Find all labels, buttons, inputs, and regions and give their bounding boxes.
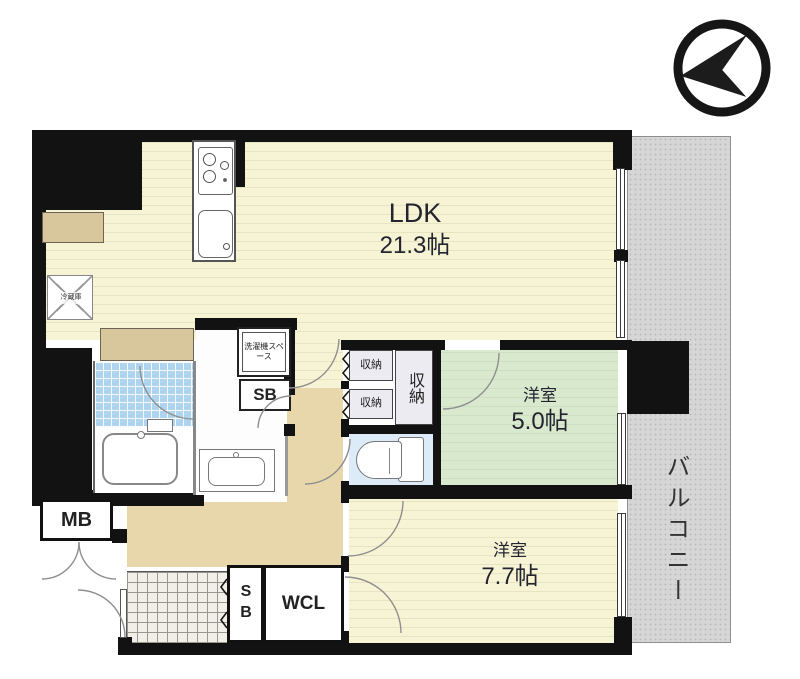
bedroom-small-name: 洋室: [523, 385, 557, 406]
mb-door-left-arc: [42, 542, 79, 579]
ldk-label: LDK 21.3帖: [340, 196, 490, 262]
ldk-size: 21.3帖: [380, 231, 451, 261]
mb-door-right-arc: [79, 542, 116, 579]
shoebox-bifold-icon: [221, 579, 227, 628]
bedroom-large-size: 7.7帖: [481, 562, 538, 592]
bedroom-large-name: 洋室: [493, 540, 527, 561]
bedroom-small-size: 5.0帖: [511, 407, 568, 437]
balcony-label: バルコニー: [643, 425, 707, 637]
front-door-arc: [78, 590, 125, 637]
washroom-door-arc: [258, 396, 291, 428]
closet-top-bifold-icon: [343, 352, 349, 380]
bedroom-large-door-arc: [348, 501, 403, 556]
wcl-door-arc: [345, 577, 401, 633]
ldk-name: LDK: [389, 197, 442, 231]
floorplan-page: { "plan_title": "間取り図", "compass": {"ico…: [0, 0, 800, 679]
compass-arrow-icon: [666, 14, 778, 122]
closet-bottom-bifold-icon: [343, 391, 349, 419]
bath-door-arc: [140, 366, 193, 419]
bedroom-small-label: 洋室 5.0帖: [468, 376, 612, 446]
compass: [666, 14, 778, 122]
bedroom-large-label: 洋室 7.7帖: [438, 528, 582, 604]
toilet-door-arc: [305, 439, 350, 484]
ldk-hall-door-arc: [289, 339, 339, 388]
